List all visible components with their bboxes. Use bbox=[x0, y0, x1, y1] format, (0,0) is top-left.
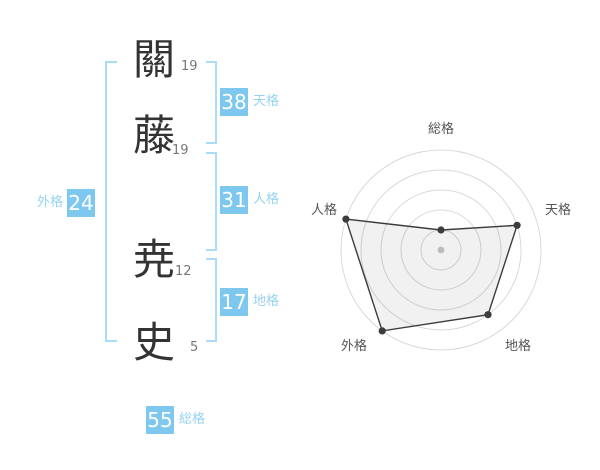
radar-data-point bbox=[484, 311, 491, 318]
stroke-count-surname-2: 19 bbox=[172, 144, 189, 158]
given-char-1: 尭 bbox=[130, 239, 178, 281]
gaikaku-value-badge: 24 bbox=[67, 189, 95, 217]
soukaku-value-badge: 55 bbox=[146, 406, 174, 434]
radar-axis-label: 地格 bbox=[505, 338, 531, 354]
stroke-count-given-1: 12 bbox=[175, 265, 192, 279]
gaikaku-bracket bbox=[105, 61, 117, 342]
radar-axis-label: 人格 bbox=[311, 202, 337, 218]
chikaku-label: 地格 bbox=[253, 295, 279, 309]
surname-char-2: 藤 bbox=[130, 115, 178, 157]
radar-axis-label: 外格 bbox=[341, 338, 367, 354]
chikaku-bracket bbox=[206, 258, 217, 342]
stroke-count-given-2: 5 bbox=[190, 341, 198, 355]
chikaku-value-badge: 17 bbox=[220, 288, 248, 316]
tenkaku-label: 天格 bbox=[253, 95, 279, 109]
radar-data-point bbox=[437, 226, 444, 233]
radar-center-dot bbox=[438, 247, 445, 254]
radar-axis-label: 天格 bbox=[545, 202, 571, 218]
surname-char-1: 關 bbox=[130, 39, 178, 81]
stroke-count-surname-1: 19 bbox=[181, 60, 198, 74]
radar-data-point bbox=[342, 216, 349, 223]
jinkaku-bracket bbox=[206, 152, 217, 251]
given-char-2: 史 bbox=[130, 322, 178, 364]
radar-data-point bbox=[514, 222, 521, 229]
tenkaku-value-badge: 38 bbox=[220, 88, 248, 116]
gaikaku-label: 外格 bbox=[35, 196, 63, 210]
jinkaku-value-badge: 31 bbox=[220, 186, 248, 214]
kakusuu-radar-chart: 総格天格地格外格人格 bbox=[280, 110, 600, 370]
jinkaku-label: 人格 bbox=[253, 193, 279, 207]
tenkaku-bracket bbox=[206, 61, 217, 144]
radar-axis-label: 総格 bbox=[428, 121, 454, 137]
soukaku-label: 総格 bbox=[179, 413, 205, 427]
radar-data-point bbox=[379, 327, 386, 334]
